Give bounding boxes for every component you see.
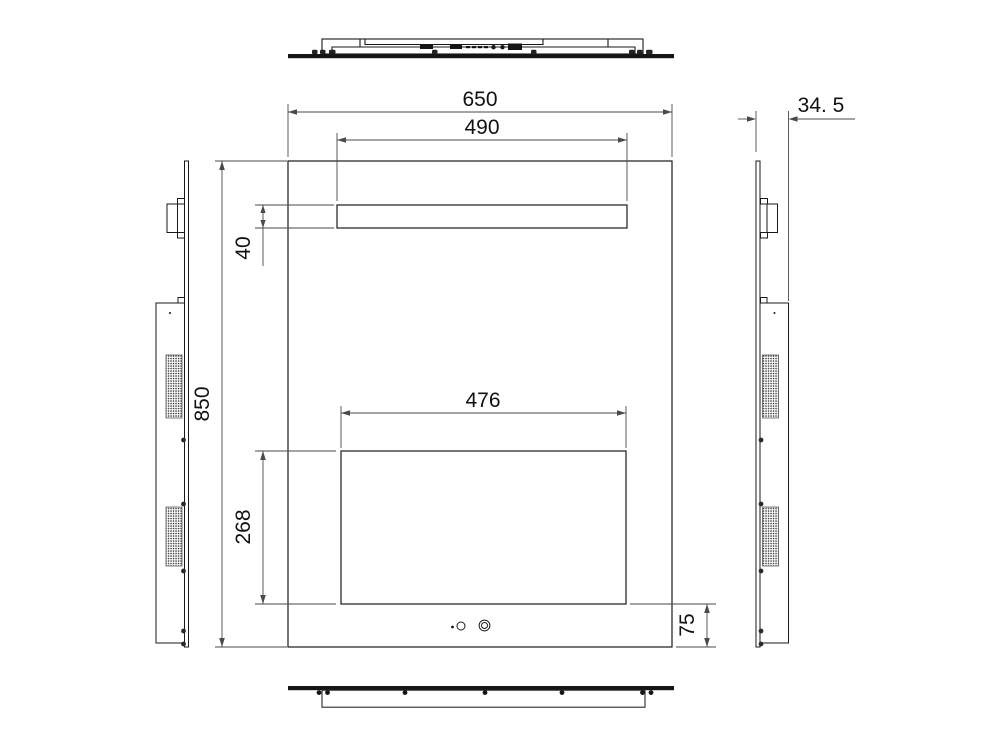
stud (646, 50, 653, 54)
bottom-view-screws (317, 690, 654, 695)
stud (181, 569, 186, 574)
dimension-label-40: 40 (232, 236, 255, 259)
stud (329, 50, 336, 54)
ir-sensor-dot (451, 626, 454, 629)
connector-power-socket (508, 44, 522, 51)
dimension-label-490: 490 (464, 116, 499, 139)
screw (325, 690, 330, 695)
dimension-label-75: 75 (676, 613, 699, 636)
arrowhead (747, 116, 756, 122)
right-side-view (756, 161, 789, 647)
arrowhead (789, 116, 798, 122)
sensor-circle (457, 622, 465, 630)
dimension-label-34-5: 34. 5 (798, 94, 845, 117)
dimension-label-268: 268 (232, 509, 255, 544)
power-button-ring-outer (479, 620, 490, 631)
stud (181, 502, 186, 507)
left-side-view (156, 161, 189, 647)
right-view-speaker-grille (763, 355, 779, 418)
arrowhead (704, 638, 710, 647)
stud (759, 642, 764, 647)
dimension-bottom-margin: 75 (630, 604, 716, 647)
stud (320, 50, 326, 54)
left-view-bracket-tab (178, 298, 185, 304)
connector-pin (466, 46, 470, 48)
connector-pin (472, 46, 476, 48)
screw (403, 690, 408, 695)
stud (759, 629, 764, 634)
dimension-light-height: 40 (232, 205, 334, 266)
dimension-total-height: 850 (191, 161, 287, 647)
front-view-light-strip (337, 205, 627, 228)
connector-pin (484, 46, 488, 48)
screw (649, 690, 654, 695)
stud (181, 642, 186, 647)
left-view-pilot-hole (169, 312, 171, 314)
arrowhead (337, 137, 346, 143)
arrowhead (260, 451, 266, 460)
power-button-ring-inner (482, 623, 488, 629)
stud (759, 569, 764, 574)
arrowhead (260, 205, 265, 213)
screw (640, 690, 645, 695)
stud (759, 438, 764, 443)
arrowhead (288, 109, 297, 115)
bottom-view-glass-edge (288, 686, 674, 690)
arrowhead (617, 410, 626, 416)
arrowhead (618, 137, 627, 143)
connector-jack (500, 45, 504, 49)
arrowhead (260, 220, 265, 228)
right-view-speaker-grille (763, 507, 779, 566)
connector-port (420, 45, 433, 50)
right-view-bracket-tab (761, 233, 768, 239)
left-view-bracket-tab (178, 199, 185, 205)
front-view-screen-area (341, 451, 626, 604)
stud (759, 502, 764, 507)
connector-pin (478, 46, 482, 48)
left-view-speaker-grille (166, 355, 182, 418)
dimension-label-650: 650 (462, 88, 497, 111)
left-view-wall-bracket (167, 204, 178, 233)
arrowhead (341, 410, 350, 416)
stud (181, 438, 186, 443)
screw (560, 690, 565, 695)
dimension-light-width: 490 (337, 116, 627, 201)
dimension-screen-height: 268 (232, 451, 336, 604)
technical-drawing-sheet: 650 490 34. 5 850 (0, 0, 1000, 750)
right-view-backbox (760, 303, 789, 643)
stud (629, 50, 635, 54)
dimension-label-850: 850 (191, 386, 214, 421)
right-view-bracket-tab (761, 199, 768, 205)
right-view-pilot-hole (774, 312, 776, 314)
left-view-speaker-grille (166, 507, 182, 566)
dimension-label-476: 476 (465, 389, 500, 412)
arrowhead (260, 595, 266, 604)
left-view-backbox (156, 303, 185, 643)
top-view-glass-edge (288, 54, 674, 58)
left-view-glass-panel (185, 161, 189, 647)
screw (483, 690, 488, 695)
dimension-screen-width: 476 (341, 389, 626, 448)
right-view-bracket-tab (761, 298, 768, 304)
stud (531, 50, 537, 54)
stud (637, 50, 643, 54)
connector-jack (491, 45, 495, 49)
right-view-glass-panel (756, 161, 760, 647)
stud (432, 50, 438, 54)
arrowhead (663, 109, 672, 115)
mirror-tv-dimension-drawing: 650 490 34. 5 850 (0, 0, 1000, 750)
top-view (288, 39, 674, 58)
connector-port (450, 45, 462, 50)
left-view-bracket-tab (178, 233, 185, 239)
bottom-view (288, 686, 674, 707)
stud (181, 629, 186, 634)
screw (317, 690, 322, 695)
stud (312, 50, 318, 54)
dimensions: 650 490 34. 5 850 (191, 88, 855, 647)
right-view-wall-bracket (767, 204, 778, 233)
arrowhead (219, 638, 225, 647)
arrowhead (219, 161, 225, 170)
arrowhead (704, 604, 710, 613)
